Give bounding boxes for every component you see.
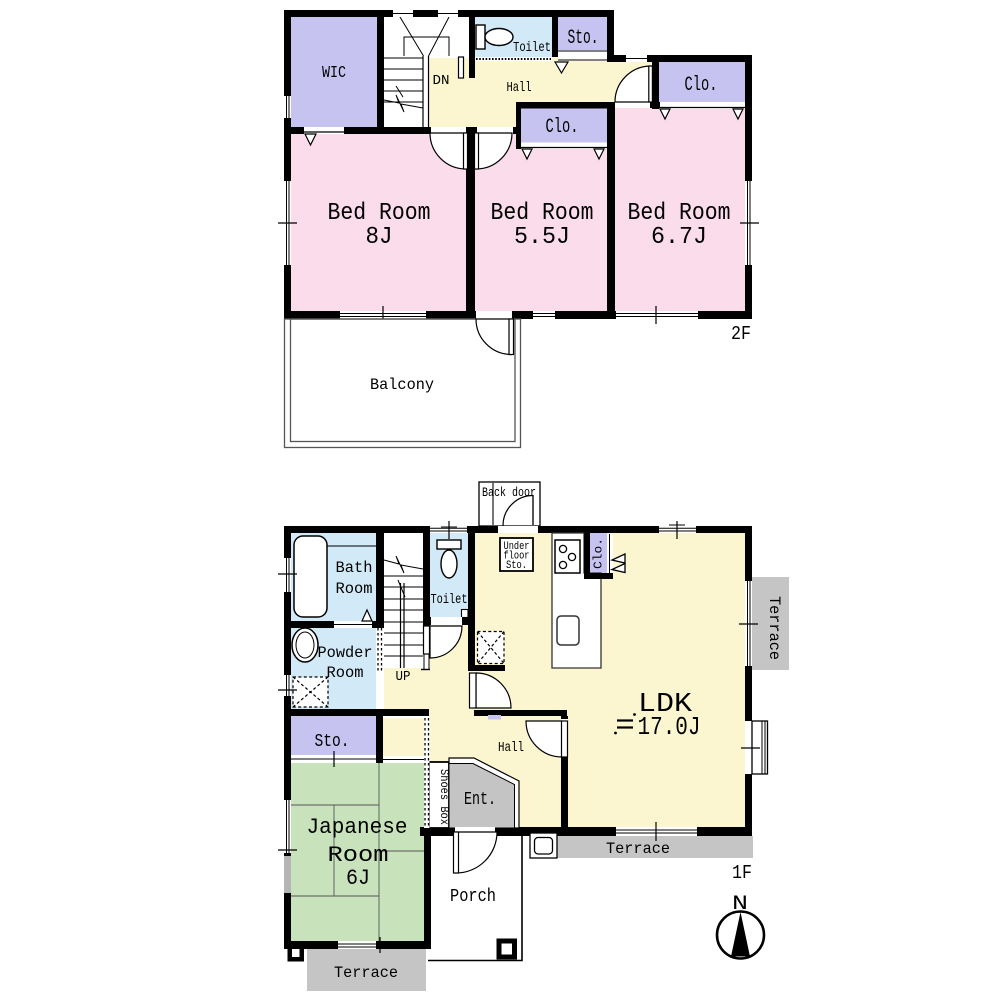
svg-text:Toilet: Toilet <box>431 592 468 608</box>
svg-text:Sto.: Sto. <box>568 27 599 50</box>
svg-text:Bath: Bath <box>336 559 373 577</box>
svg-text:Room: Room <box>336 580 373 598</box>
svg-text:17.0J: 17.0J <box>638 712 701 742</box>
svg-text:Porch: Porch <box>450 887 496 907</box>
svg-text:Clo.: Clo. <box>546 116 579 139</box>
svg-text:Ent.: Ent. <box>464 790 496 810</box>
svg-text:Bed Room: Bed Room <box>491 200 594 227</box>
svg-text:Room: Room <box>328 843 389 868</box>
svg-text:Back door: Back door <box>482 485 536 500</box>
svg-text:6.7J: 6.7J <box>651 224 707 251</box>
svg-text:UP: UP <box>396 669 411 685</box>
svg-text:DN: DN <box>433 73 450 89</box>
svg-text:Hall: Hall <box>507 80 532 96</box>
svg-text:Hall: Hall <box>498 740 524 756</box>
svg-text:8J: 8J <box>366 224 393 251</box>
svg-text:Bed Room: Bed Room <box>328 200 431 227</box>
svg-text:Powder: Powder <box>318 644 373 662</box>
svg-text:Balcony: Balcony <box>370 376 434 394</box>
svg-text:1F: 1F <box>732 862 752 884</box>
svg-text:Terrace: Terrace <box>606 840 670 858</box>
svg-text:Room: Room <box>327 664 364 682</box>
svg-text:Clo.: Clo. <box>592 538 606 569</box>
svg-text:Clo.: Clo. <box>685 74 718 97</box>
svg-text:Toilet: Toilet <box>513 40 551 56</box>
svg-text:Terrace: Terrace <box>765 596 783 660</box>
svg-text:5.5J: 5.5J <box>514 224 570 251</box>
svg-text:Japanese: Japanese <box>307 815 408 840</box>
svg-text:Sto.: Sto. <box>506 560 527 572</box>
svg-text:Terrace: Terrace <box>334 964 398 982</box>
svg-text:Bed Room: Bed Room <box>628 200 731 227</box>
svg-text:WIC: WIC <box>322 64 346 83</box>
svg-text:Sto.: Sto. <box>315 732 350 752</box>
svg-text:6J: 6J <box>346 866 370 891</box>
svg-text:2F: 2F <box>731 323 751 345</box>
